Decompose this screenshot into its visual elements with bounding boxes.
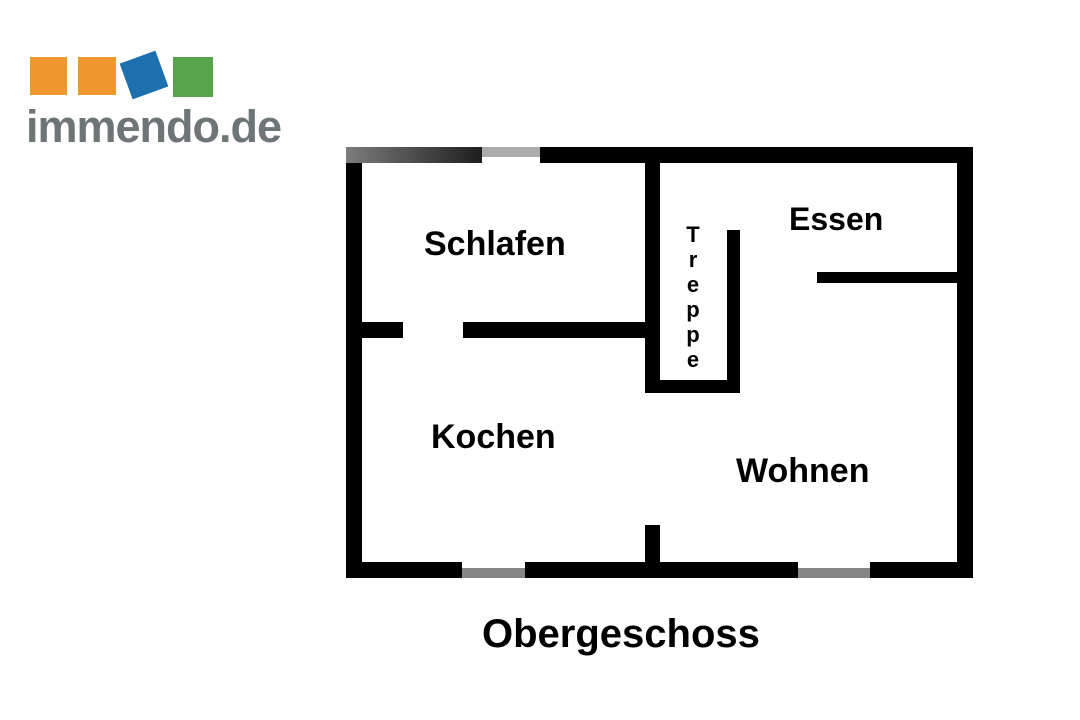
room-label-essen: Essen bbox=[789, 201, 883, 238]
wall-outer-top bbox=[540, 147, 973, 163]
wall-kochen-wohnen-stub bbox=[645, 525, 660, 578]
wall-stair-right bbox=[727, 230, 740, 393]
wall-stair-bottom bbox=[645, 380, 740, 393]
room-label-kochen: Kochen bbox=[431, 418, 556, 457]
logo-orange-square-icon bbox=[78, 57, 116, 95]
wall-schlafen-bottom-main bbox=[463, 322, 660, 338]
page: immendo.de Schlafen Essen Kochen Wohnen … bbox=[0, 0, 1080, 720]
window-bottom-right bbox=[798, 562, 870, 578]
logo-orange-square-icon bbox=[30, 57, 67, 95]
room-label-treppe: Treppe bbox=[685, 222, 701, 372]
wall-essen-stub bbox=[817, 272, 965, 283]
wall-schlafen-bottom-left bbox=[346, 322, 403, 338]
logo-text: immendo.de bbox=[26, 101, 281, 153]
wall-outer-left bbox=[346, 150, 362, 578]
wall-top-gradient-segment bbox=[346, 147, 482, 163]
logo-blue-tilted-square-icon bbox=[120, 51, 169, 100]
plan-title: Obergeschoss bbox=[482, 611, 760, 657]
wall-outer-right bbox=[957, 147, 973, 578]
room-label-schlafen: Schlafen bbox=[424, 225, 566, 264]
room-label-wohnen: Wohnen bbox=[736, 452, 869, 491]
wall-divider-vertical bbox=[645, 150, 660, 393]
window-bottom-left bbox=[462, 562, 525, 578]
logo-green-square-icon bbox=[173, 57, 213, 97]
window-top bbox=[482, 147, 540, 163]
